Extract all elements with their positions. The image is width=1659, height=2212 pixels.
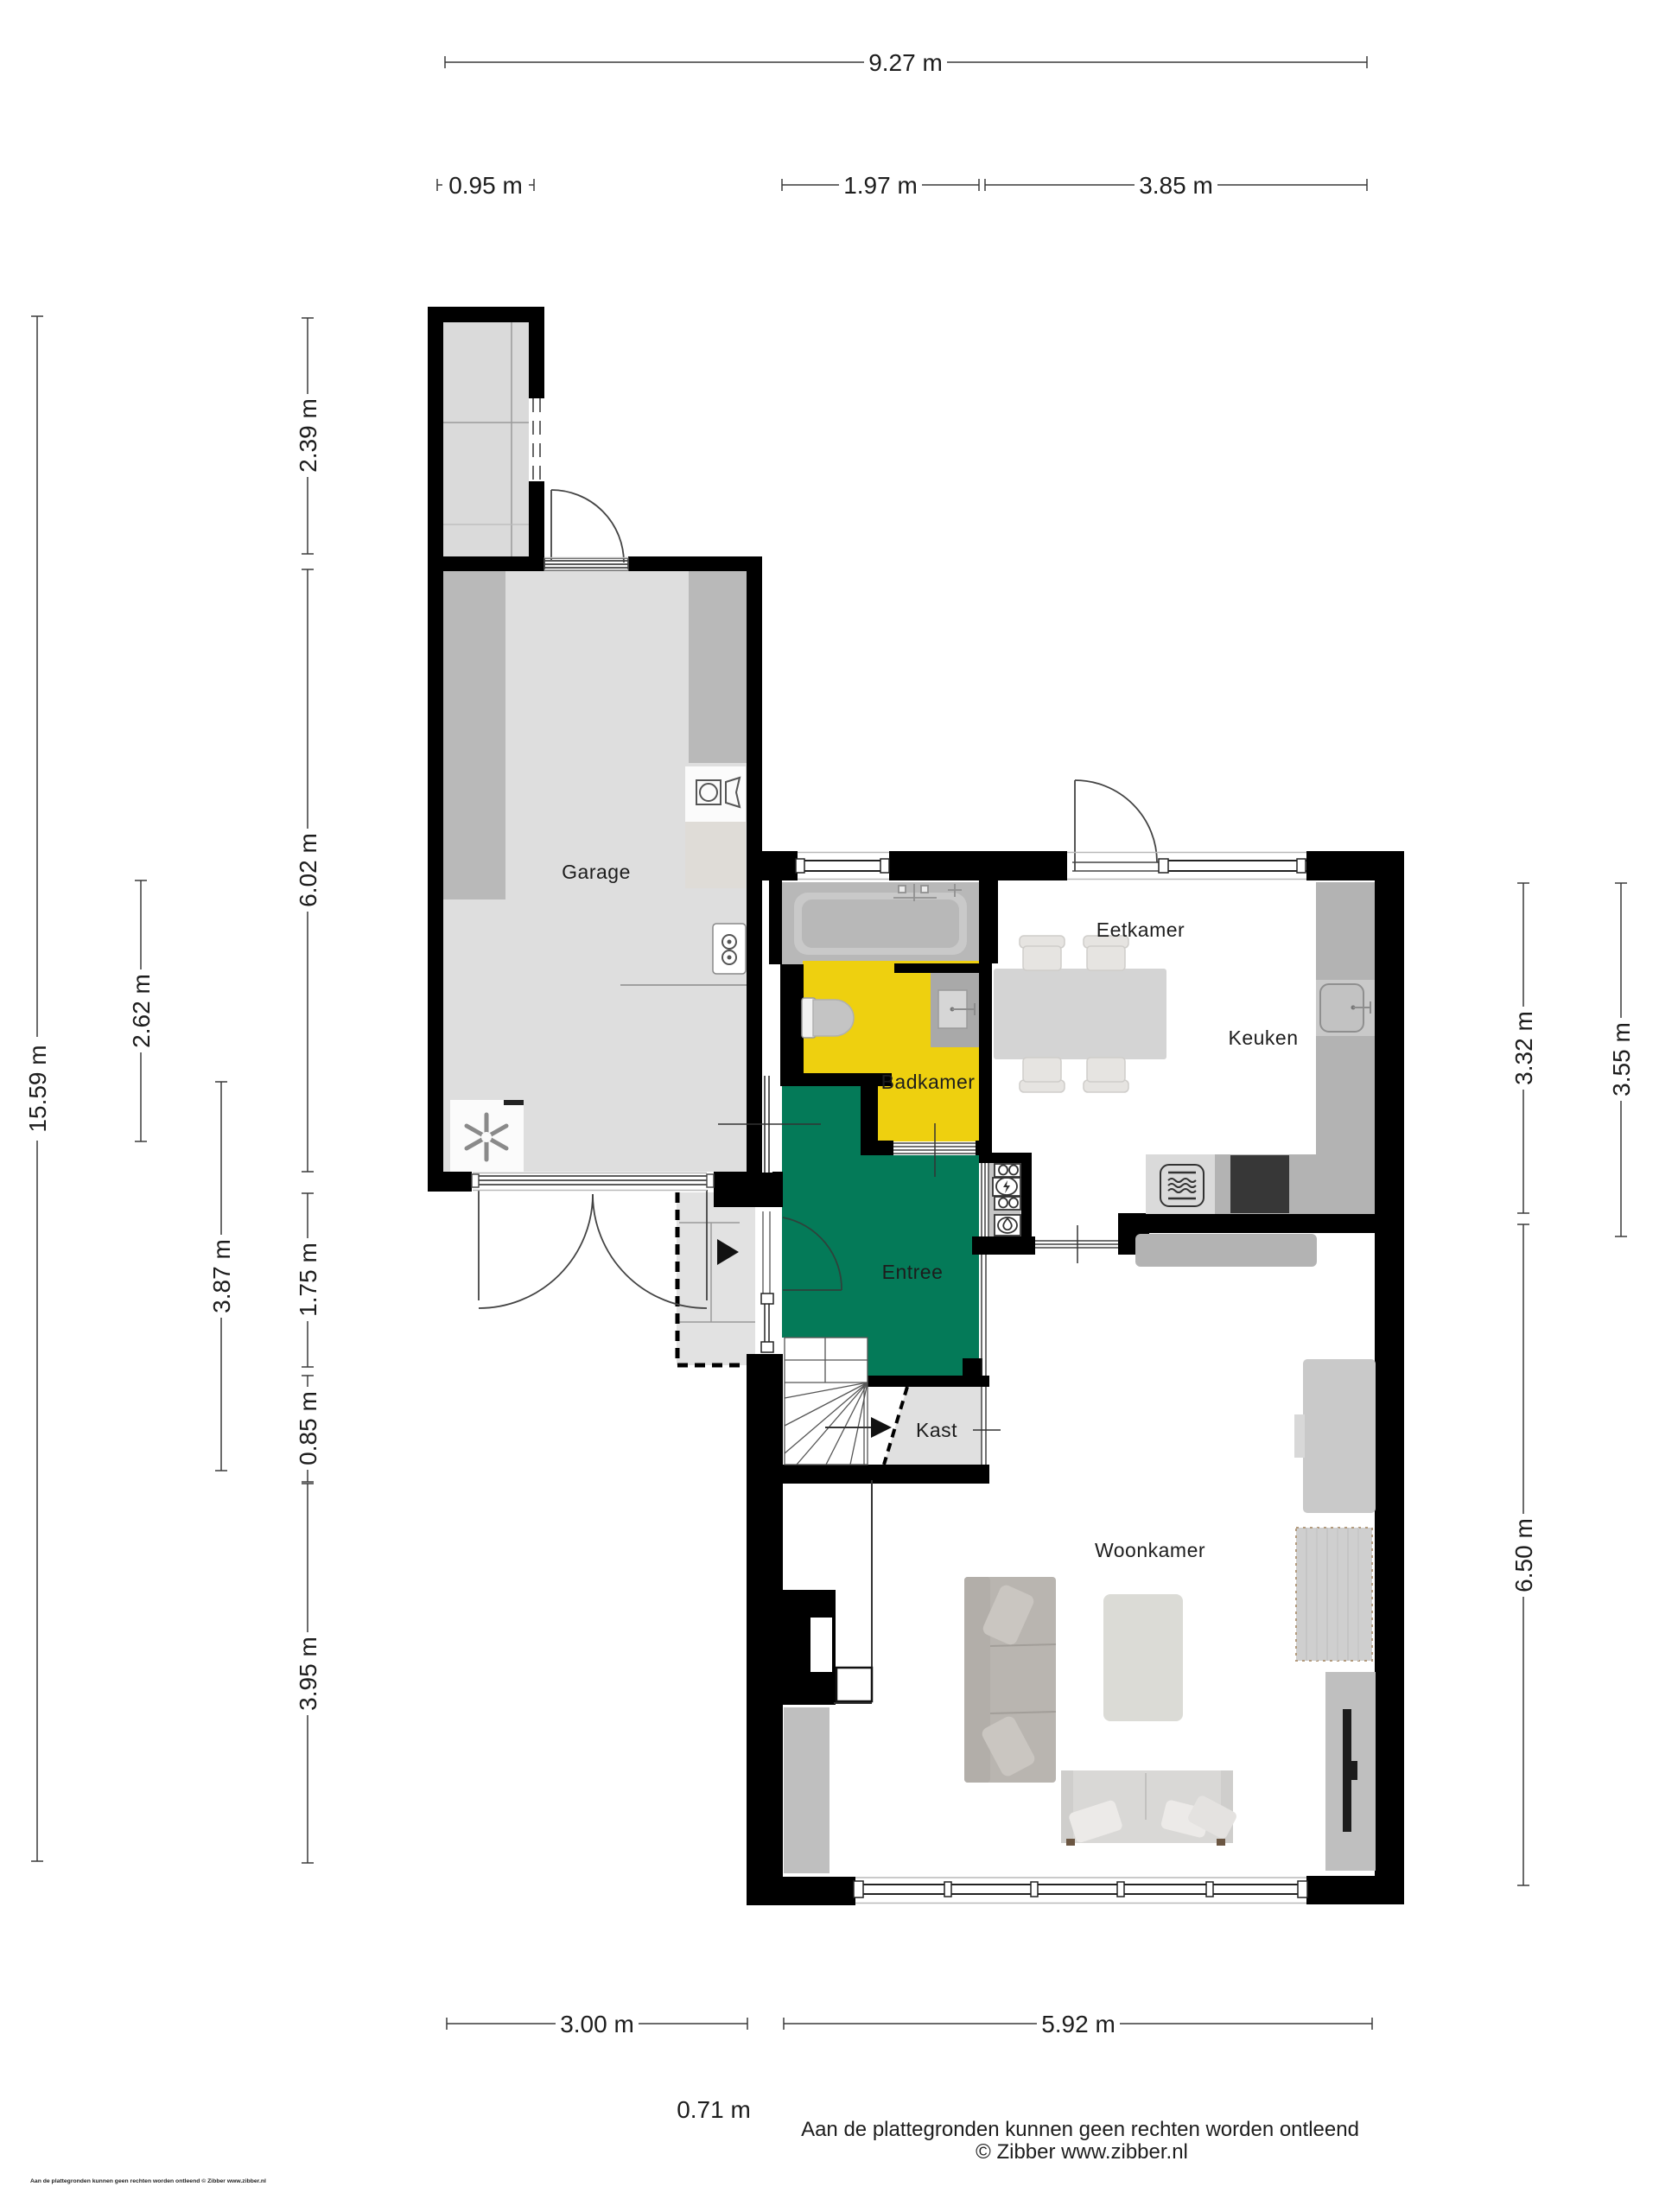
svg-text:9.27 m: 9.27 m xyxy=(868,49,943,76)
svg-text:Woonkamer: Woonkamer xyxy=(1095,1539,1205,1561)
svg-text:Aan de plattegronden kunnen ge: Aan de plattegronden kunnen geen rechten… xyxy=(801,2118,1359,2141)
svg-text:© Zibber www.zibber.nl: © Zibber www.zibber.nl xyxy=(976,2140,1188,2164)
svg-text:3.32 m: 3.32 m xyxy=(1510,1011,1537,1085)
svg-text:Garage: Garage xyxy=(562,861,631,883)
svg-text:1.97 m: 1.97 m xyxy=(843,172,918,199)
svg-text:Entree: Entree xyxy=(882,1261,944,1283)
svg-text:5.92 m: 5.92 m xyxy=(1041,2011,1116,2037)
svg-text:2.62 m: 2.62 m xyxy=(128,974,155,1048)
svg-text:0.71 m: 0.71 m xyxy=(677,2096,751,2123)
svg-text:3.85 m: 3.85 m xyxy=(1139,172,1213,199)
svg-text:Aan de plattegronden kunnen ge: Aan de plattegronden kunnen geen rechten… xyxy=(30,2177,266,2184)
svg-text:Kast: Kast xyxy=(916,1419,957,1441)
svg-text:0.95 m: 0.95 m xyxy=(448,172,523,199)
svg-text:Badkamer: Badkamer xyxy=(881,1071,976,1093)
svg-text:1.75 m: 1.75 m xyxy=(295,1243,321,1317)
svg-text:2.39 m: 2.39 m xyxy=(295,398,321,473)
svg-text:Keuken: Keuken xyxy=(1228,1027,1298,1049)
svg-text:6.02 m: 6.02 m xyxy=(295,833,321,907)
svg-text:3.55 m: 3.55 m xyxy=(1608,1022,1635,1096)
svg-text:6.50 m: 6.50 m xyxy=(1510,1518,1537,1592)
svg-text:0.85 m: 0.85 m xyxy=(295,1391,321,1465)
svg-text:Eetkamer: Eetkamer xyxy=(1096,918,1185,941)
svg-text:3.00 m: 3.00 m xyxy=(560,2011,634,2037)
svg-text:3.87 m: 3.87 m xyxy=(208,1239,235,1313)
svg-text:15.59 m: 15.59 m xyxy=(24,1045,51,1132)
svg-text:3.95 m: 3.95 m xyxy=(295,1637,321,1711)
